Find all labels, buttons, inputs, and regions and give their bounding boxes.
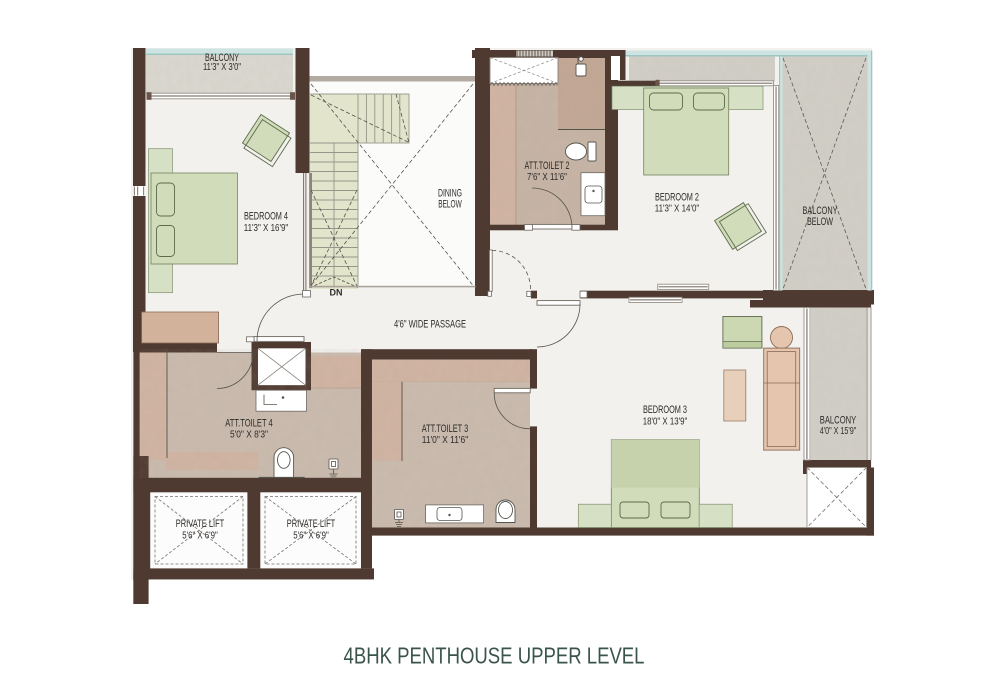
svg-text:BELOW: BELOW	[438, 199, 462, 211]
svg-text:5'6" X 6'9": 5'6" X 6'9"	[182, 531, 218, 542]
svg-text:ATT.TOILET 2: ATT.TOILET 2	[525, 160, 570, 172]
svg-text:11'3" X 3'0": 11'3" X 3'0"	[203, 62, 241, 73]
svg-text:BEDROOM 2: BEDROOM 2	[655, 192, 699, 204]
svg-text:11'3" X 16'9": 11'3" X 16'9"	[244, 223, 289, 234]
svg-text:5'6" X 6'9": 5'6" X 6'9"	[293, 531, 329, 542]
svg-text:7'6" X 11'6": 7'6" X 11'6"	[527, 172, 567, 183]
svg-text:4'0" X 15'9": 4'0" X 15'9"	[820, 426, 857, 437]
svg-text:BEDROOM 4: BEDROOM 4	[244, 211, 288, 223]
svg-text:11'0" X 11'6": 11'0" X 11'6"	[422, 435, 469, 446]
svg-text:4'6" WIDE PASSAGE: 4'6" WIDE PASSAGE	[394, 319, 466, 331]
svg-text:PRIVATE LIFT: PRIVATE LIFT	[287, 518, 336, 530]
svg-text:18'0" X 13'9": 18'0" X 13'9"	[643, 417, 688, 428]
svg-text:PRIVATE LIFT: PRIVATE LIFT	[176, 518, 225, 530]
svg-text:5'0" X 8'3": 5'0" X 8'3"	[230, 430, 268, 441]
svg-text:11'3" X 14'0": 11'3" X 14'0"	[655, 204, 700, 215]
svg-text:DN: DN	[330, 288, 343, 298]
svg-text:BELOW: BELOW	[807, 216, 833, 228]
svg-text:ATT.TOILET 3: ATT.TOILET 3	[422, 423, 469, 435]
svg-text:BEDROOM 3: BEDROOM 3	[643, 404, 687, 416]
svg-text:4BHK PENTHOUSE UPPER LEVEL: 4BHK PENTHOUSE UPPER LEVEL	[344, 643, 645, 669]
svg-text:ATT.TOILET 4: ATT.TOILET 4	[225, 418, 273, 430]
svg-text:BALCONY: BALCONY	[820, 415, 857, 427]
